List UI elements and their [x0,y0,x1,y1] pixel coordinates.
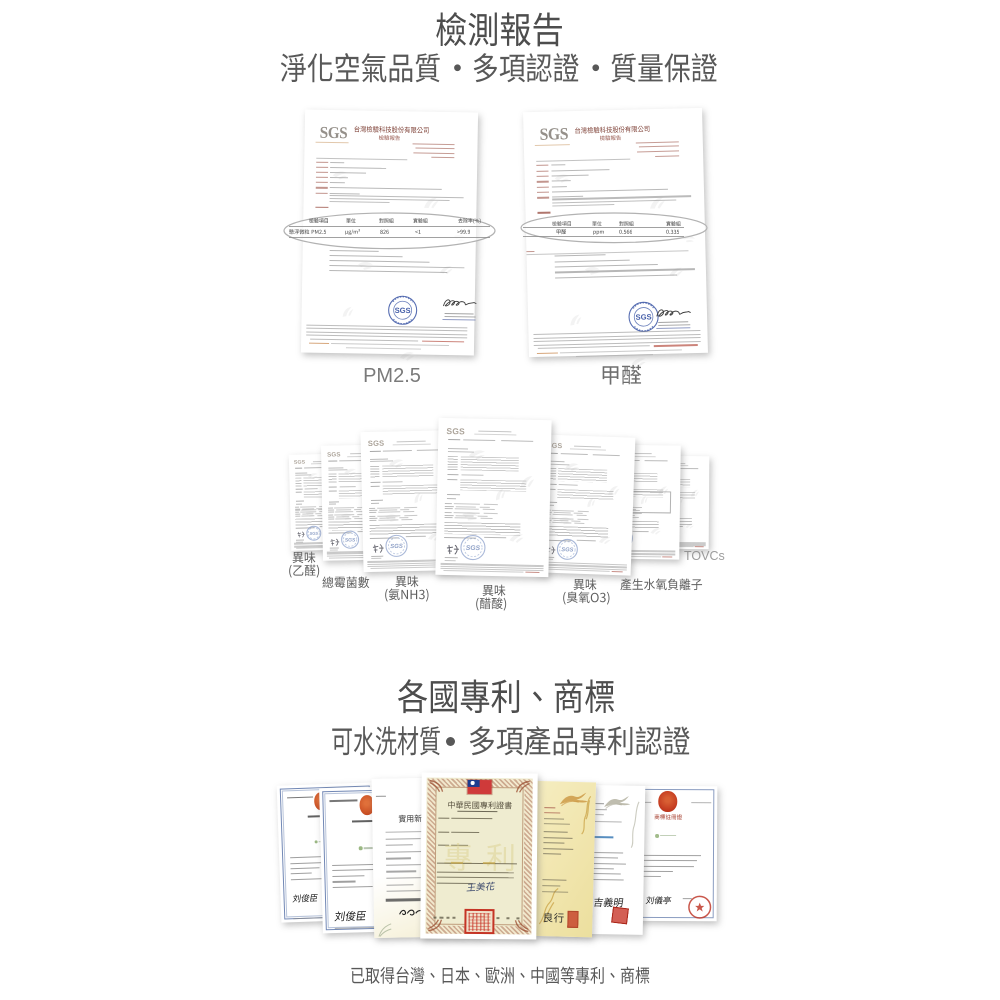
svg-text:SGS: SGS [466,545,481,552]
svg-text:SGS: SGS [561,547,573,553]
svg-text:SGS: SGS [394,306,410,315]
svg-text:SGS: SGS [636,312,652,321]
svg-text:SGS: SGS [390,544,403,550]
svg-text:SGS: SGS [344,537,355,543]
svg-text:SGS: SGS [309,531,318,536]
